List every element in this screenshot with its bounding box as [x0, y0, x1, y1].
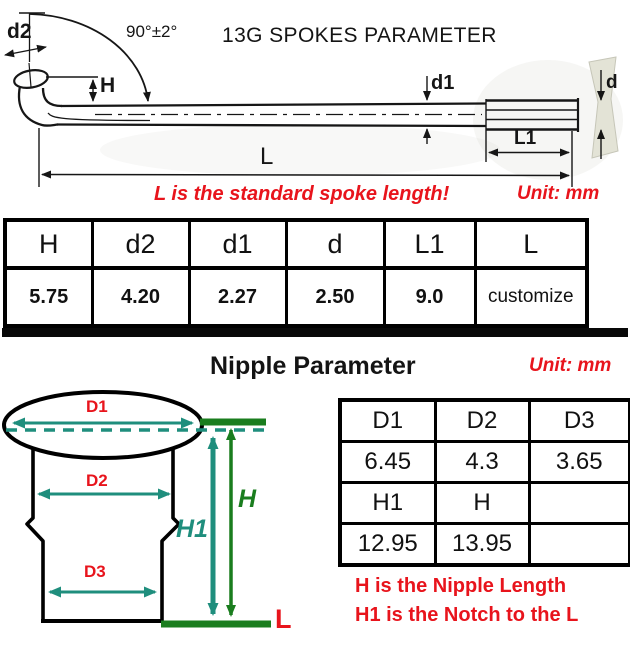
spoke-d2-label: d2 [7, 21, 32, 42]
spoke-parameter-table: H d2 d1 d L1 L 5.75 4.20 2.27 2.50 9.0 c… [3, 218, 589, 328]
spoke-l-label: L [260, 145, 273, 169]
spoke-table-header: d [286, 220, 384, 268]
nipple-d3-label: D3 [84, 563, 106, 580]
spoke-table-value: 9.0 [384, 268, 475, 326]
nipple-d1-label: D1 [86, 398, 108, 415]
nipple-table-cell: D2 [435, 400, 529, 442]
spoke-table-value: 2.50 [286, 268, 384, 326]
spoke-d-label: d [606, 73, 618, 92]
nipple-table-cell: 12.95 [340, 524, 435, 566]
spoke-table-header: d2 [92, 220, 189, 268]
nipple-table-cell: D3 [529, 400, 630, 442]
nipple-title: Nipple Parameter [210, 352, 416, 381]
spoke-table-value: 4.20 [92, 268, 189, 326]
l-dimension-arrow [42, 175, 569, 176]
nipple-table-cell: 3.65 [529, 442, 630, 483]
nipple-table-row: H1 H [340, 483, 630, 524]
spoke-table-header-row: H d2 d1 d L1 L [5, 220, 587, 268]
nipple-table-row: D1 D2 D3 [340, 400, 630, 442]
nipple-note-h: H is the Nipple Length [355, 575, 566, 598]
spoke-shaft-top [61, 104, 486, 107]
nipple-table-cell: 13.95 [435, 524, 529, 566]
spoke-elbow-outer [19, 86, 58, 126]
spoke-note: L is the standard spoke length! [154, 183, 449, 206]
nipple-h-label: H [238, 487, 256, 512]
section-divider [2, 328, 628, 337]
spoke-elbow-inner [43, 88, 62, 106]
spoke-l1-label: L1 [514, 129, 536, 148]
spoke-d1-label: d1 [431, 73, 454, 93]
spoke-table-header: d1 [189, 220, 286, 268]
spoke-table-value: 5.75 [5, 268, 92, 326]
nipple-table-cell: 6.45 [340, 442, 435, 483]
nipple-table-cell [529, 483, 630, 524]
nipple-table-row: 6.45 4.3 3.65 [340, 442, 630, 483]
nipple-table-row: 12.95 13.95 [340, 524, 630, 566]
spoke-table-value: 2.27 [189, 268, 286, 326]
spoke-table-value-row: 5.75 4.20 2.27 2.50 9.0 customize [5, 268, 587, 326]
d2-dimension-arrow [5, 47, 46, 55]
nipple-unit: Unit: mm [529, 355, 611, 377]
nipple-table-cell: H [435, 483, 529, 524]
nipple-table-cell [529, 524, 630, 566]
nipple-body-left [27, 440, 43, 621]
nipple-l-label: L [275, 606, 292, 633]
spoke-shaft-bottom [57, 125, 486, 127]
spoke-unit: Unit: mm [517, 183, 599, 205]
nipple-table-cell: 4.3 [435, 442, 529, 483]
spoke-table-header: L1 [384, 220, 475, 268]
nipple-diagram [0, 385, 320, 647]
spoke-table-header: L [475, 220, 587, 268]
nipple-h1-label: H1 [176, 517, 208, 542]
spoke-angle-label: 90°±2° [126, 22, 177, 42]
spoke-table-value: customize [475, 268, 587, 326]
spoke-title: 13G SPOKES PARAMETER [222, 24, 497, 48]
spoke-h-label: H [100, 75, 115, 96]
nipple-table-cell: H1 [340, 483, 435, 524]
nipple-table-cell: D1 [340, 400, 435, 442]
nipple-note-h1: H1 is the Notch to the L [355, 604, 578, 627]
spoke-table-header: H [5, 220, 92, 268]
nipple-d2-label: D2 [86, 472, 108, 489]
nipple-parameter-table: D1 D2 D3 6.45 4.3 3.65 H1 H 12.95 13.95 [338, 398, 630, 567]
scan-shading [100, 124, 500, 176]
